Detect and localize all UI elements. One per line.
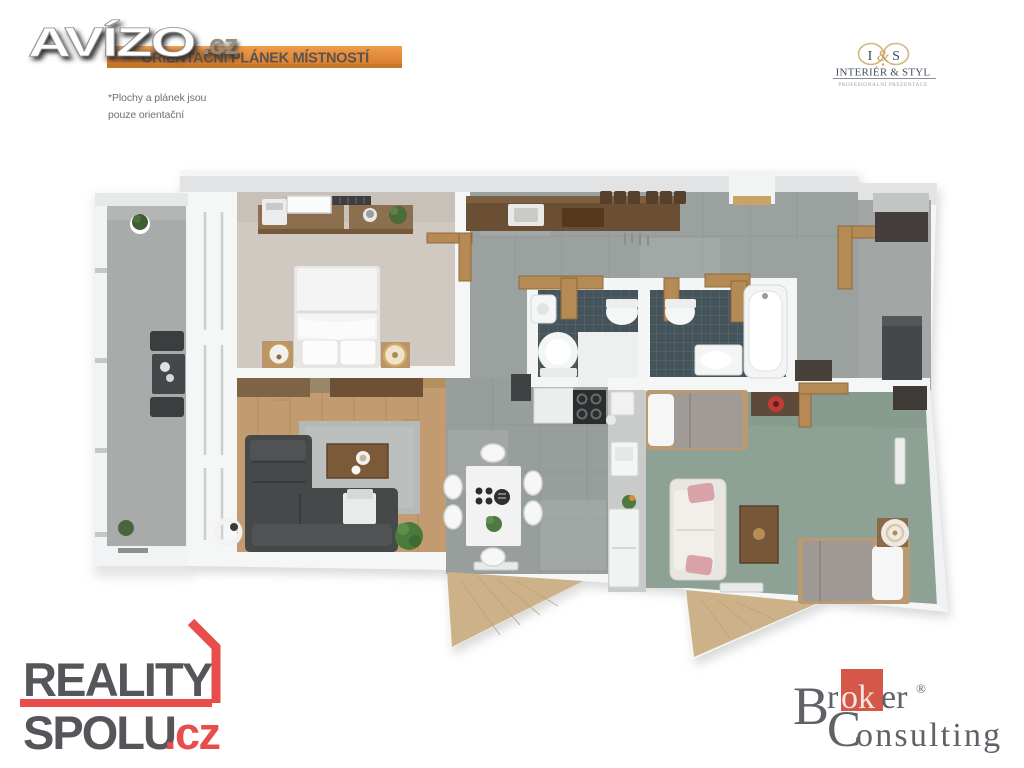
svg-text:.cz: .cz	[202, 29, 238, 61]
svg-text:SPOLU: SPOLU	[23, 706, 175, 759]
svg-text:onsulting: onsulting	[856, 717, 1002, 754]
svg-text:.cz: .cz	[164, 708, 220, 759]
svg-text:pouze orientační: pouze orientační	[108, 109, 184, 121]
svg-text:*Plochy a plánek jsou: *Plochy a plánek jsou	[108, 92, 207, 104]
svg-text:B: B	[793, 676, 829, 736]
svg-text:PROFESIONÁLNÍ PREZENTACE: PROFESIONÁLNÍ PREZENTACE	[838, 80, 928, 88]
svg-text:er: er	[881, 679, 908, 716]
svg-text:S: S	[892, 49, 900, 64]
svg-text:AVÍZO: AVÍZO	[28, 19, 194, 65]
svg-text:I: I	[868, 49, 873, 64]
svg-text:REALITY: REALITY	[23, 653, 213, 706]
svg-text:INTERIÉR & STYL: INTERIÉR & STYL	[836, 67, 931, 79]
svg-text:®: ®	[916, 681, 926, 696]
svg-text:&: &	[877, 48, 890, 65]
